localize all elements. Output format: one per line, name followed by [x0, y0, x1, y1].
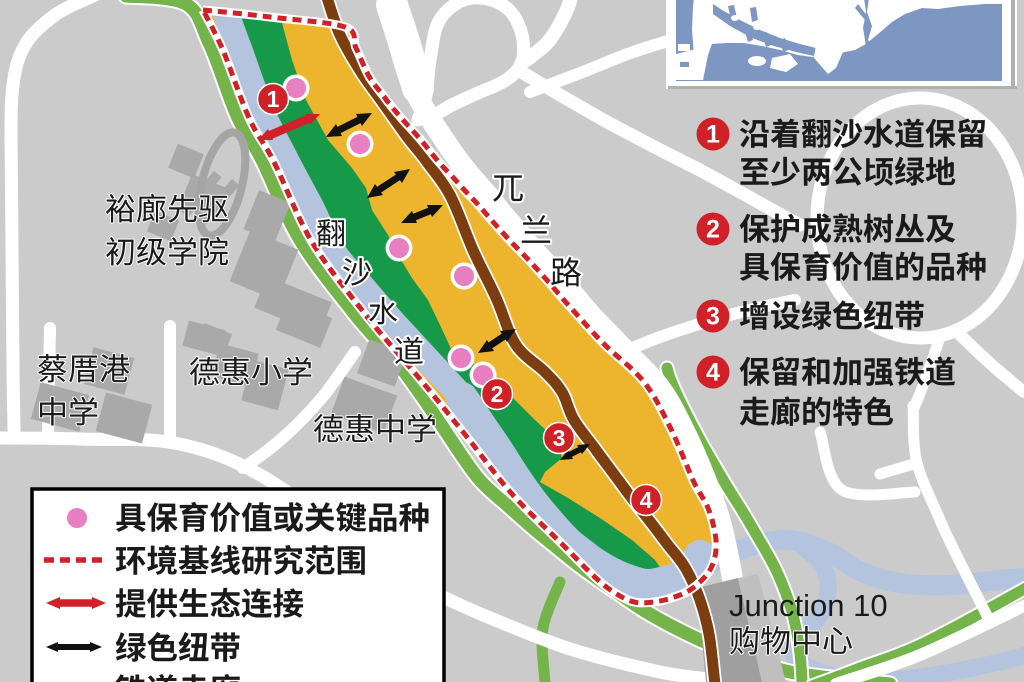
- svg-text:2: 2: [706, 216, 720, 244]
- svg-text:1: 1: [267, 86, 280, 112]
- svg-text:3: 3: [553, 425, 566, 451]
- svg-text:4: 4: [640, 487, 653, 513]
- svg-text:Junction 10: Junction 10: [729, 588, 888, 623]
- svg-text:3: 3: [706, 303, 720, 331]
- svg-text:4: 4: [706, 359, 720, 387]
- svg-text:1: 1: [706, 121, 720, 149]
- svg-text:2: 2: [491, 381, 504, 407]
